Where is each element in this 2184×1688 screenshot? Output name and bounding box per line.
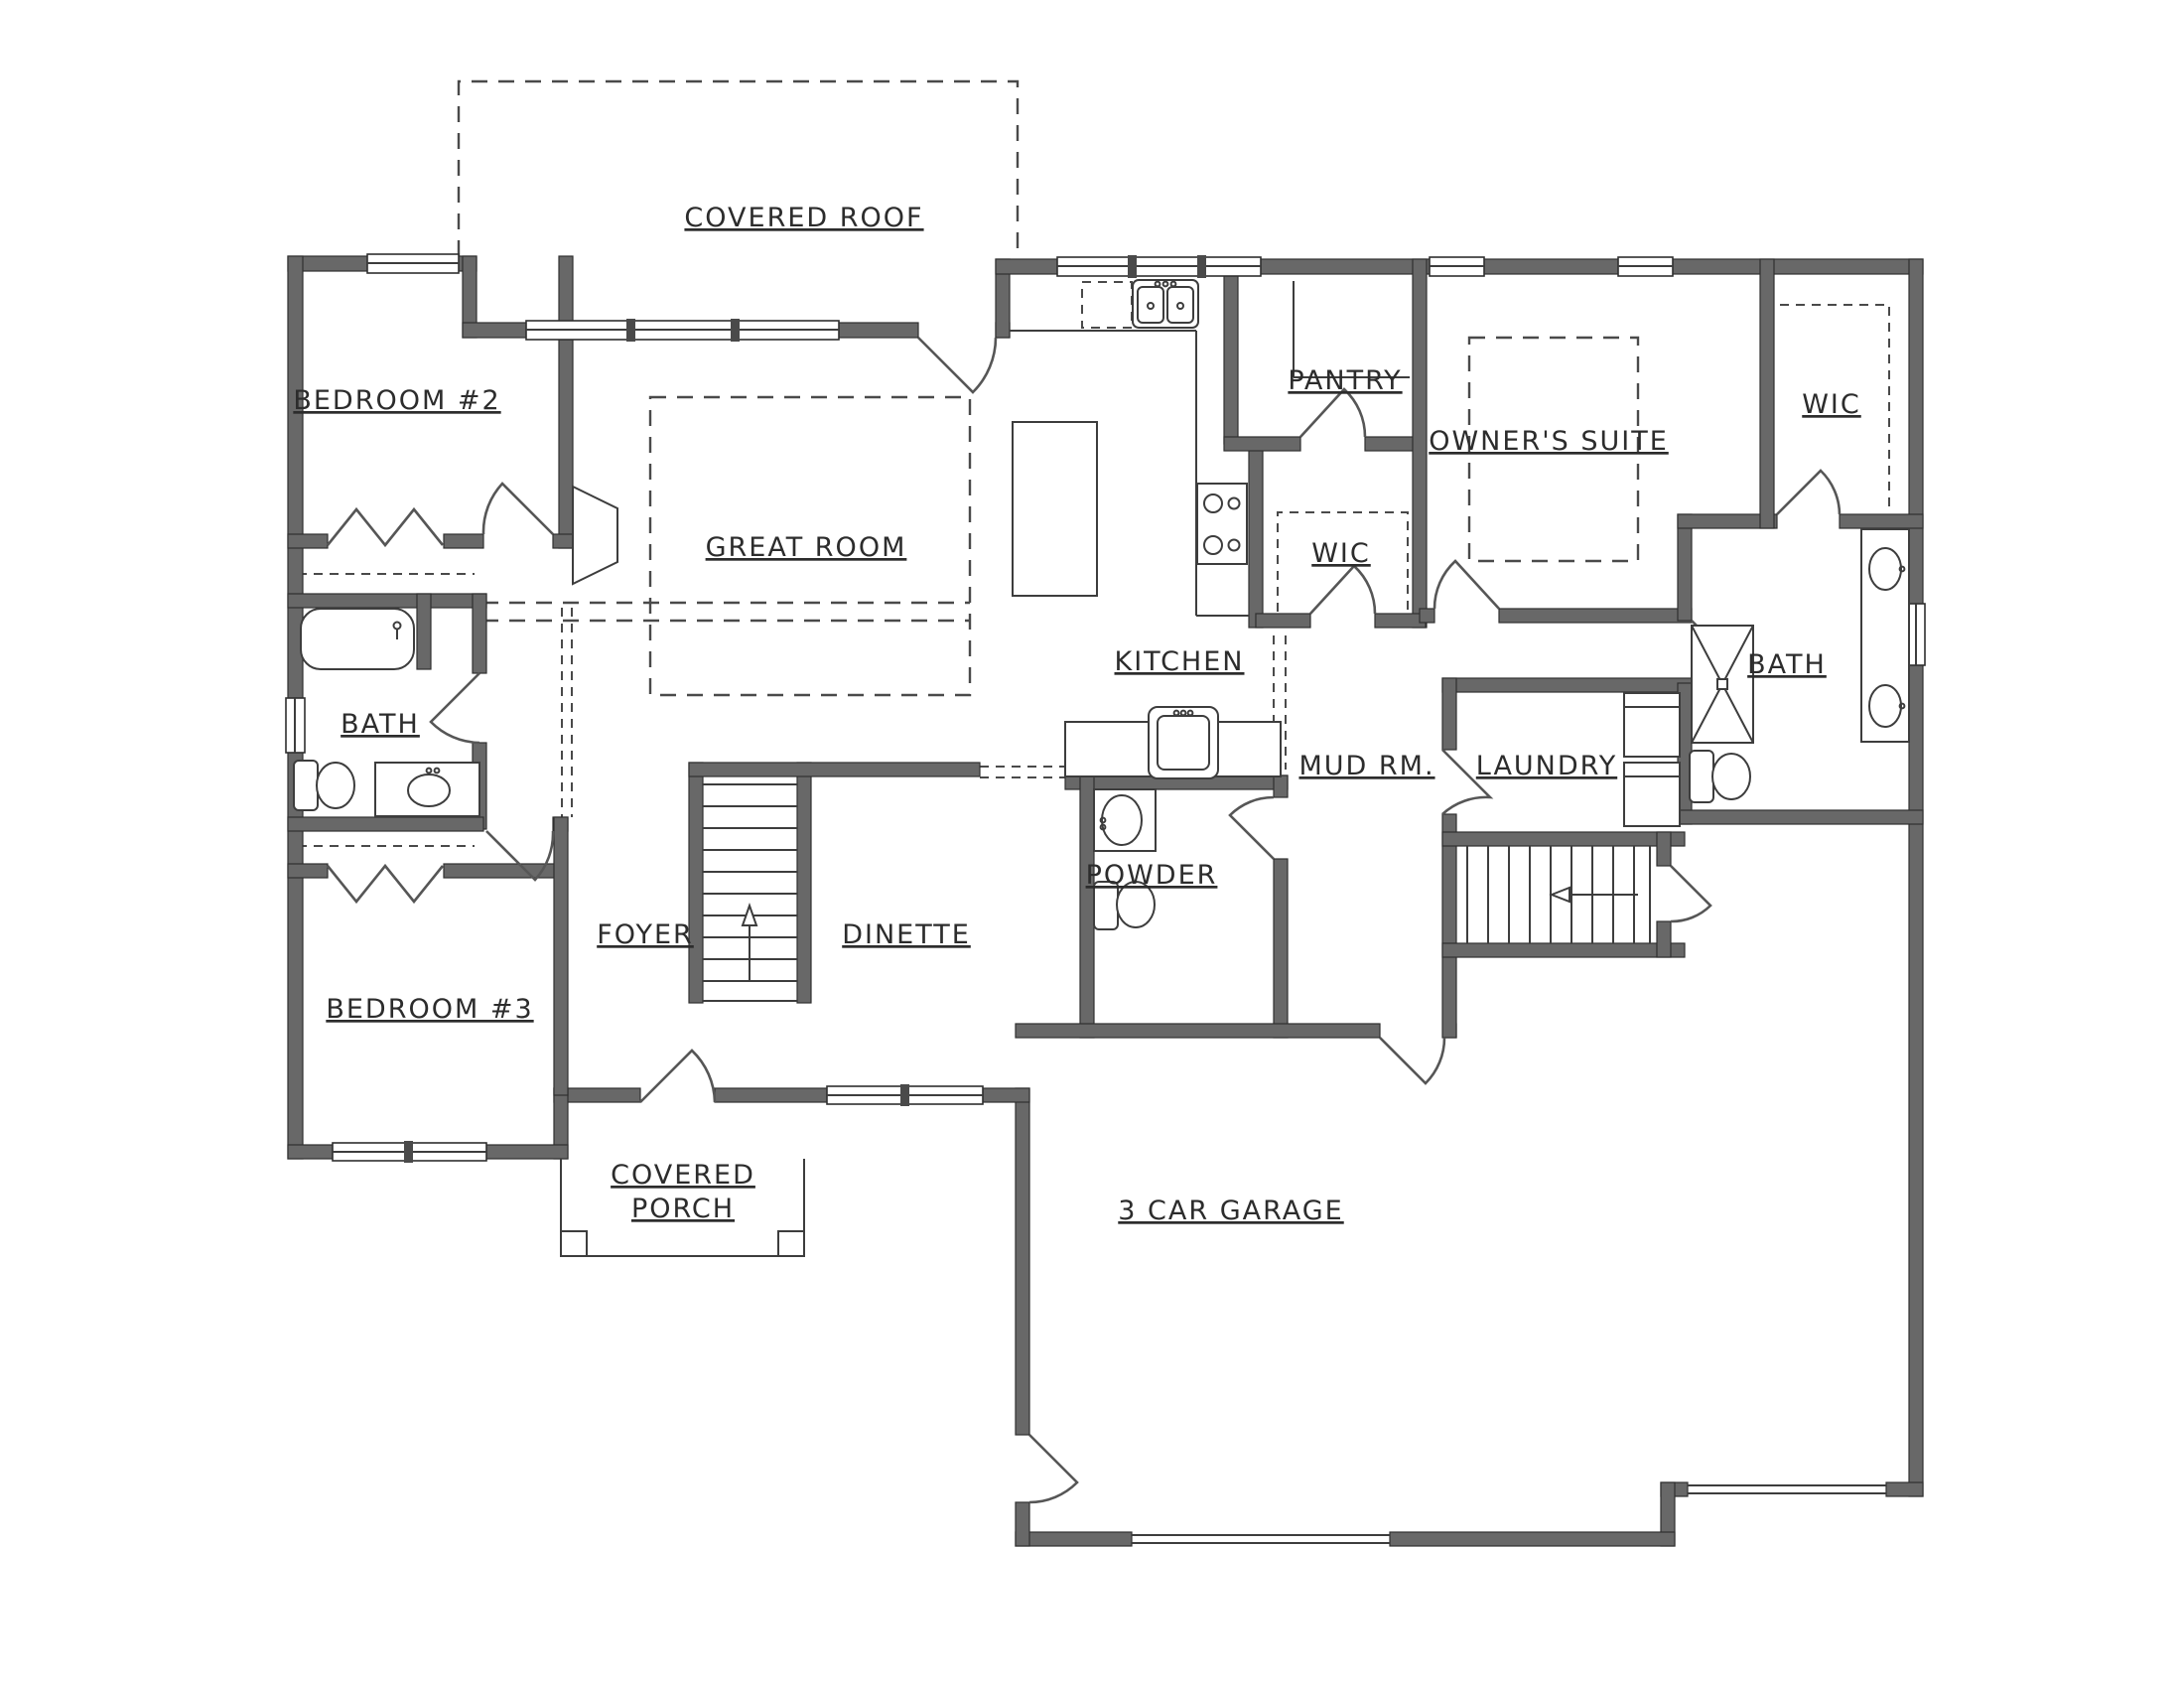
- mudroom-garage-door: [1380, 1038, 1444, 1083]
- dryer-icon: [1624, 763, 1680, 826]
- kitchen-double-sink-icon: [1133, 280, 1198, 328]
- label-covered-roof: COVERED ROOF: [684, 203, 923, 233]
- label-wic-master: WIC: [1802, 389, 1861, 420]
- label-bath-master: BATH: [1747, 649, 1827, 680]
- label-pantry: PANTRY: [1288, 365, 1402, 396]
- basement-stairs-door: [1671, 866, 1710, 921]
- label-garage: 3 CAR GARAGE: [1118, 1196, 1343, 1226]
- pantry-door: [1300, 389, 1365, 437]
- floor-plan-sheet: COVERED ROOF BEDROOM #2 GREAT ROOM KITCH…: [0, 0, 2184, 1688]
- label-bedroom-2: BEDROOM #2: [293, 385, 500, 416]
- floor-plan-drawing: COVERED ROOF BEDROOM #2 GREAT ROOM KITCH…: [0, 0, 2184, 1688]
- stairs-down-basement: [1467, 846, 1650, 943]
- label-covered-porch-line1: COVERED: [611, 1160, 755, 1191]
- label-covered-porch-line2: PORCH: [631, 1194, 735, 1224]
- fireplace: [573, 487, 617, 584]
- label-wic-hall: WIC: [1311, 538, 1371, 569]
- label-kitchen: KITCHEN: [1115, 646, 1245, 677]
- powder-door: [1230, 797, 1274, 859]
- garage-door-side: [1688, 1485, 1886, 1493]
- label-bedroom-3: BEDROOM #3: [326, 994, 533, 1025]
- label-great-room: GREAT ROOM: [706, 532, 907, 563]
- label-foyer: FOYER: [597, 919, 694, 950]
- washer-icon: [1624, 693, 1680, 757]
- wic-master-door: [1777, 471, 1840, 514]
- kitchen-island: [1013, 422, 1097, 596]
- owners-suite-door: [1434, 561, 1499, 609]
- label-laundry: LAUNDRY: [1476, 751, 1617, 781]
- porch-column: [778, 1231, 804, 1256]
- wic-hall-door: [1310, 566, 1375, 614]
- shower-icon: [1692, 626, 1753, 743]
- label-dinette: DINETTE: [842, 919, 971, 950]
- bath-left-door: [431, 673, 479, 743]
- label-owners-suite: OWNER'S SUITE: [1429, 426, 1669, 457]
- garage-door-main: [1132, 1535, 1390, 1543]
- porch-column: [561, 1231, 587, 1256]
- bedroom3-closet-bifold: [328, 866, 443, 902]
- label-mud-room: MUD RM.: [1298, 751, 1434, 781]
- stairs-up: [703, 784, 797, 1001]
- bedroom2-door: [483, 484, 553, 534]
- bedroom2-closet-bifold: [328, 509, 443, 545]
- range-icon: [1197, 484, 1247, 564]
- vanity-left-icon: [375, 763, 479, 816]
- cased-opening-kitchen-dinette: [980, 767, 1065, 777]
- garage-service-door: [1029, 1435, 1077, 1502]
- tub-icon: [301, 609, 414, 669]
- toilet-left-icon: [294, 761, 354, 810]
- rear-door: [918, 338, 996, 392]
- powder-sink-icon: [1094, 789, 1156, 851]
- vanity-master-icon: [1861, 529, 1909, 742]
- dishwasher-dashed: [1082, 282, 1132, 328]
- toilet-master-icon: [1690, 751, 1750, 802]
- label-bath-left: BATH: [341, 709, 420, 740]
- interior-walls: [288, 256, 1923, 1095]
- cased-opening-hall: [562, 608, 572, 817]
- front-door: [640, 1051, 715, 1102]
- label-powder: POWDER: [1086, 860, 1218, 891]
- pantry-shelves: [1294, 281, 1410, 377]
- peninsula-counter: [1065, 707, 1281, 778]
